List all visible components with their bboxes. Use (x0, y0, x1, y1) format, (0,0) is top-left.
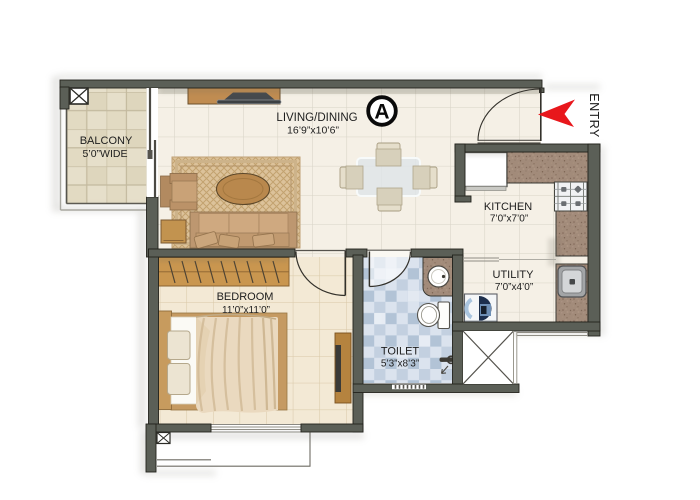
svg-text:11’0”x11’0”: 11’0”x11’0” (222, 305, 270, 316)
svg-text:7’0”x4’0”: 7’0”x4’0” (495, 282, 533, 293)
svg-text:7’0”x7’0”: 7’0”x7’0” (490, 214, 528, 225)
svg-text:LIVING/DINING: LIVING/DINING (276, 112, 357, 124)
svg-text:5’3”x8’3”: 5’3”x8’3” (381, 359, 419, 370)
svg-text:5’0”WIDE: 5’0”WIDE (83, 148, 128, 160)
svg-text:TOILET: TOILET (381, 346, 420, 358)
svg-text:A: A (374, 101, 389, 124)
svg-text:UTILITY: UTILITY (493, 269, 535, 281)
svg-text:KITCHEN: KITCHEN (484, 201, 532, 213)
svg-text:ENTRY: ENTRY (587, 93, 601, 138)
svg-text:16’9”x10’6”: 16’9”x10’6” (287, 125, 339, 137)
svg-text:BEDROOM: BEDROOM (217, 291, 274, 303)
svg-text:BALCONY: BALCONY (80, 135, 133, 147)
